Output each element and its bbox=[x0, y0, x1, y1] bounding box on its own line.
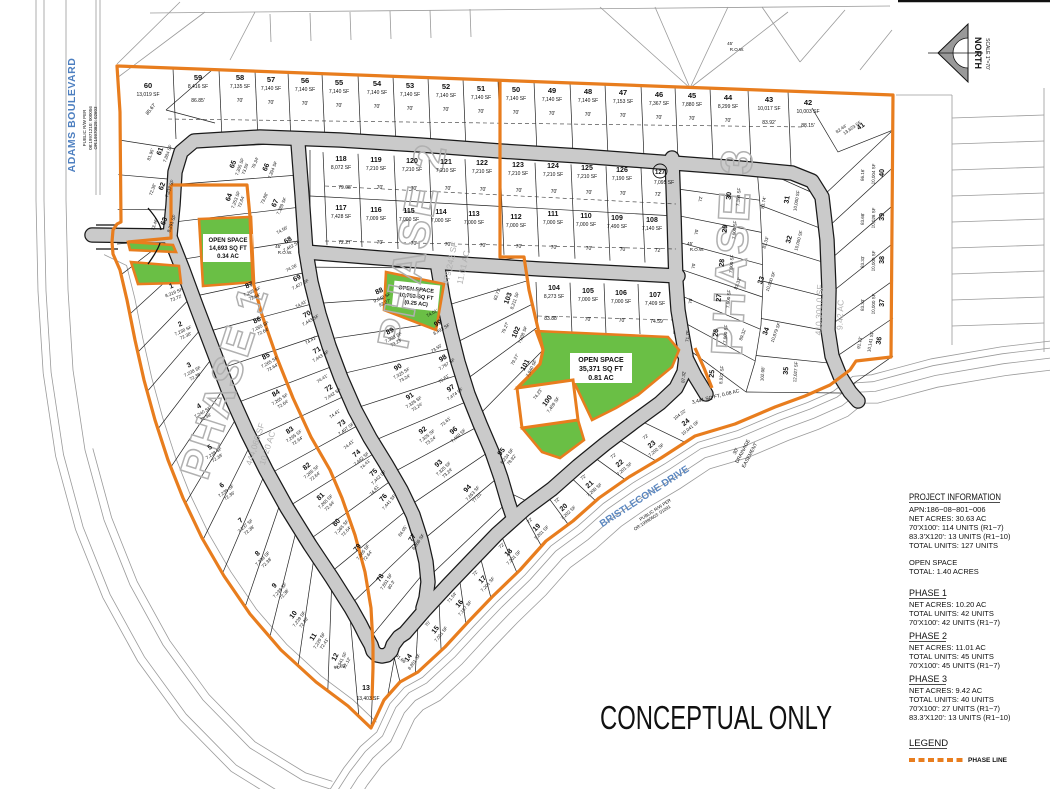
svg-text:9.42 AC: 9.42 AC bbox=[834, 300, 845, 331]
svg-text:45': 45' bbox=[687, 241, 693, 246]
svg-text:70'X100': 114 UNITS (R1−7): 70'X100': 114 UNITS (R1−7) bbox=[909, 523, 1004, 532]
svg-text:7,140 SF: 7,140 SF bbox=[578, 98, 598, 104]
svg-text:43: 43 bbox=[765, 95, 773, 104]
svg-text:70': 70' bbox=[585, 112, 592, 118]
svg-text:NET ACRES: 30.63 AC: NET ACRES: 30.63 AC bbox=[909, 514, 987, 523]
svg-text:83.3'X120': 13 UNITS (R1−10): 83.3'X120': 13 UNITS (R1−10) bbox=[909, 532, 1011, 541]
svg-text:8,416 SF: 8,416 SF bbox=[188, 84, 208, 90]
svg-text:10,028 SF: 10,028 SF bbox=[871, 207, 877, 228]
svg-text:105: 105 bbox=[582, 288, 594, 295]
svg-text:7,000 SF: 7,000 SF bbox=[578, 297, 598, 303]
svg-text:83.88': 83.88' bbox=[544, 316, 558, 322]
svg-text:7,140 SF: 7,140 SF bbox=[542, 97, 562, 103]
svg-text:CONCEPTUAL ONLY: CONCEPTUAL ONLY bbox=[600, 699, 832, 736]
svg-text:7,210 SF: 7,210 SF bbox=[508, 171, 528, 177]
svg-text:70': 70' bbox=[237, 98, 244, 104]
svg-text:70': 70' bbox=[689, 116, 696, 122]
svg-text:70'X100': 42 UNITS (R1−7): 70'X100': 42 UNITS (R1−7) bbox=[909, 618, 1001, 627]
svg-text:0.34 AC: 0.34 AC bbox=[217, 254, 239, 260]
svg-text:123: 123 bbox=[512, 162, 524, 169]
svg-text:27: 27 bbox=[716, 294, 724, 302]
svg-text:70': 70' bbox=[445, 186, 452, 192]
svg-text:58: 58 bbox=[236, 73, 244, 82]
svg-text:7,409 SF: 7,409 SF bbox=[645, 301, 665, 307]
svg-text:70': 70' bbox=[443, 107, 450, 113]
svg-text:70': 70' bbox=[516, 244, 523, 250]
svg-text:44: 44 bbox=[724, 93, 733, 102]
svg-text:47: 47 bbox=[619, 88, 627, 97]
svg-text:107: 107 bbox=[649, 292, 661, 299]
svg-text:39: 39 bbox=[879, 213, 886, 221]
svg-text:TOTAL UNITS: 42 UNITS: TOTAL UNITS: 42 UNITS bbox=[909, 609, 994, 618]
svg-text:56: 56 bbox=[301, 76, 309, 85]
svg-text:PHASE 3: PHASE 3 bbox=[909, 674, 947, 684]
svg-text:7,153 SF: 7,153 SF bbox=[613, 99, 633, 105]
svg-text:13: 13 bbox=[362, 685, 370, 692]
svg-text:7,000 SF: 7,000 SF bbox=[576, 222, 596, 228]
svg-text:7,140 SF: 7,140 SF bbox=[329, 89, 349, 95]
svg-text:NET ACRES: 10.20 AC: NET ACRES: 10.20 AC bbox=[909, 600, 987, 609]
svg-text:109: 109 bbox=[611, 215, 623, 222]
svg-text:10,000 SF: 10,000 SF bbox=[871, 250, 877, 271]
svg-text:70': 70' bbox=[268, 100, 275, 106]
svg-text:83.3'X120': 13 UNITS (R1−10): 83.3'X120': 13 UNITS (R1−10) bbox=[909, 713, 1011, 722]
svg-text:86.85': 86.85' bbox=[191, 98, 205, 104]
svg-text:29: 29 bbox=[722, 225, 730, 233]
svg-text:114: 114 bbox=[435, 209, 446, 216]
svg-text:37: 37 bbox=[879, 299, 886, 307]
svg-text:70': 70' bbox=[586, 246, 593, 252]
svg-text:120: 120 bbox=[406, 158, 418, 165]
svg-text:TOTAL: 1.40 ACRES: TOTAL: 1.40 ACRES bbox=[909, 567, 979, 576]
svg-text:7,210 SF: 7,210 SF bbox=[543, 172, 563, 178]
svg-text:PHASE LINE: PHASE LINE bbox=[968, 757, 1008, 764]
svg-text:7,009 SF: 7,009 SF bbox=[366, 216, 386, 222]
svg-text:70': 70' bbox=[445, 242, 452, 248]
svg-text:25: 25 bbox=[709, 370, 717, 378]
svg-text:7,428 SF: 7,428 SF bbox=[331, 214, 351, 220]
svg-text:70': 70' bbox=[411, 186, 418, 192]
svg-text:7,880 SF: 7,880 SF bbox=[682, 102, 702, 108]
svg-text:70': 70' bbox=[725, 118, 732, 124]
svg-text:LEGEND: LEGEND bbox=[909, 738, 948, 749]
svg-text:70': 70' bbox=[694, 229, 700, 235]
svg-text:54: 54 bbox=[373, 79, 382, 88]
svg-text:70': 70' bbox=[377, 185, 384, 191]
svg-text:112: 112 bbox=[510, 214, 521, 221]
svg-text:7,000 SF: 7,000 SF bbox=[399, 217, 419, 223]
svg-text:70': 70' bbox=[688, 298, 694, 304]
svg-text:NET ACRES: 11.01 AC: NET ACRES: 11.01 AC bbox=[909, 643, 986, 652]
svg-text:APN:186−08−801−006: APN:186−08−801−006 bbox=[909, 505, 986, 514]
svg-text:PUBLIC R/W PER: PUBLIC R/W PER bbox=[82, 109, 87, 147]
svg-text:83.92': 83.92' bbox=[762, 120, 776, 126]
svg-text:14,693 SQ FT: 14,693 SQ FT bbox=[209, 246, 247, 252]
svg-text:7,000 SF: 7,000 SF bbox=[506, 223, 526, 229]
svg-text:108: 108 bbox=[646, 217, 658, 224]
svg-text:119: 119 bbox=[370, 157, 381, 164]
svg-text:TOTAL UNITS: 127 UNITS: TOTAL UNITS: 127 UNITS bbox=[909, 541, 998, 550]
svg-text:70': 70' bbox=[516, 188, 523, 194]
svg-text:55: 55 bbox=[335, 78, 343, 87]
svg-text:70': 70' bbox=[336, 103, 343, 109]
svg-text:70'X100': 27 UNITS (R1−7): 70'X100': 27 UNITS (R1−7) bbox=[909, 704, 1001, 713]
svg-text:30: 30 bbox=[726, 192, 734, 200]
svg-text:70': 70' bbox=[480, 187, 487, 193]
svg-text:126: 126 bbox=[616, 167, 628, 174]
svg-text:59: 59 bbox=[194, 73, 202, 82]
svg-text:7,000 SF: 7,000 SF bbox=[464, 220, 484, 226]
svg-text:31: 31 bbox=[783, 195, 791, 204]
svg-text:7,210 SF: 7,210 SF bbox=[577, 174, 597, 180]
svg-text:13,403 SF: 13,403 SF bbox=[356, 696, 379, 702]
svg-text:10,000 SF: 10,000 SF bbox=[871, 293, 877, 314]
svg-text:R.O.W.: R.O.W. bbox=[690, 247, 705, 252]
svg-text:124: 124 bbox=[547, 163, 559, 170]
svg-text:70': 70' bbox=[620, 191, 627, 197]
svg-text:116: 116 bbox=[370, 207, 381, 214]
svg-text:PROJECT INFORMATION: PROJECT INFORMATION bbox=[909, 492, 1001, 503]
svg-text:7,210 SF: 7,210 SF bbox=[366, 166, 386, 172]
svg-text:26: 26 bbox=[713, 329, 721, 337]
svg-text:36: 36 bbox=[875, 336, 883, 345]
svg-text:72.27': 72.27' bbox=[338, 240, 352, 246]
svg-text:8,299 SF: 8,299 SF bbox=[718, 104, 738, 110]
svg-text:70': 70' bbox=[620, 113, 627, 119]
svg-text:70': 70' bbox=[374, 104, 381, 110]
svg-text:70': 70' bbox=[407, 106, 414, 112]
svg-text:PHASE 1: PHASE 1 bbox=[909, 588, 947, 598]
svg-text:NET ACRES: 9.42 AC: NET ACRES: 9.42 AC bbox=[909, 686, 983, 695]
svg-text:74.59': 74.59' bbox=[650, 319, 664, 325]
svg-text:127: 127 bbox=[655, 170, 666, 176]
svg-text:7,000 SF: 7,000 SF bbox=[431, 218, 451, 224]
svg-text:50: 50 bbox=[512, 85, 520, 94]
svg-text:7,367 SF: 7,367 SF bbox=[649, 101, 669, 107]
svg-text:35: 35 bbox=[783, 367, 791, 375]
svg-text:42: 42 bbox=[804, 98, 812, 107]
svg-text:7,210 SF: 7,210 SF bbox=[436, 168, 456, 174]
svg-text:0.81 AC: 0.81 AC bbox=[588, 375, 613, 382]
svg-text:60: 60 bbox=[144, 81, 152, 90]
svg-text:70': 70' bbox=[411, 241, 418, 247]
svg-text:70': 70' bbox=[620, 247, 627, 253]
svg-text:7,140 SF: 7,140 SF bbox=[400, 92, 420, 98]
svg-text:8,273 SF: 8,273 SF bbox=[544, 294, 564, 300]
svg-text:86.16': 86.16' bbox=[860, 169, 865, 181]
svg-text:7,000 SF: 7,000 SF bbox=[611, 299, 631, 305]
svg-text:122: 122 bbox=[476, 160, 488, 167]
svg-text:38: 38 bbox=[879, 256, 886, 264]
svg-text:35,371 SQ FT: 35,371 SQ FT bbox=[579, 366, 624, 373]
svg-text:125: 125 bbox=[581, 165, 593, 172]
svg-text:70': 70' bbox=[549, 111, 556, 117]
svg-text:115: 115 bbox=[403, 208, 414, 215]
svg-text:53: 53 bbox=[406, 81, 414, 90]
svg-text:R.O.W.: R.O.W. bbox=[730, 47, 745, 52]
svg-text:7,140 SF: 7,140 SF bbox=[436, 93, 456, 99]
svg-text:106: 106 bbox=[615, 290, 627, 297]
svg-text:70': 70' bbox=[551, 189, 558, 195]
svg-text:ADAMS BOULEVARD: ADAMS BOULEVARD bbox=[66, 58, 78, 173]
svg-text:45': 45' bbox=[275, 244, 281, 249]
svg-text:45': 45' bbox=[727, 41, 733, 46]
svg-text:7,140 SF: 7,140 SF bbox=[261, 86, 281, 92]
svg-text:7,095 SF: 7,095 SF bbox=[654, 180, 674, 186]
svg-text:7,140 SF: 7,140 SF bbox=[642, 226, 662, 232]
svg-text:OPEN SPACE: OPEN SPACE bbox=[578, 357, 624, 364]
svg-text:PHASE 2: PHASE 2 bbox=[909, 631, 947, 641]
svg-text:410,300.0 SF: 410,300.0 SF bbox=[813, 284, 825, 335]
svg-text:70': 70' bbox=[585, 317, 592, 323]
svg-text:13,019 SF: 13,019 SF bbox=[136, 92, 159, 98]
svg-text:70': 70' bbox=[302, 101, 309, 107]
svg-text:7,140 SF: 7,140 SF bbox=[506, 96, 526, 102]
svg-text:72': 72' bbox=[655, 192, 662, 198]
svg-text:79.08': 79.08' bbox=[338, 185, 352, 191]
svg-text:83.33': 83.33' bbox=[860, 299, 865, 311]
svg-text:8,072 SF: 8,072 SF bbox=[331, 165, 351, 171]
svg-text:7,140 SF: 7,140 SF bbox=[367, 90, 387, 96]
svg-text:TOTAL UNITS: 45 UNITS: TOTAL UNITS: 45 UNITS bbox=[909, 652, 994, 661]
svg-text:7,135 SF: 7,135 SF bbox=[230, 84, 250, 90]
svg-text:7,490 SF: 7,490 SF bbox=[607, 224, 627, 230]
svg-text:NORTH: NORTH bbox=[973, 37, 983, 69]
svg-text:10,003 SF: 10,003 SF bbox=[796, 109, 819, 115]
svg-text:46: 46 bbox=[655, 90, 663, 99]
svg-text:87.32': 87.32' bbox=[680, 370, 686, 383]
svg-text:70': 70' bbox=[513, 110, 520, 116]
svg-text:7,190 SF: 7,190 SF bbox=[612, 176, 632, 182]
svg-text:57: 57 bbox=[267, 75, 275, 84]
svg-text:70': 70' bbox=[619, 318, 626, 324]
svg-text:7,000 SF: 7,000 SF bbox=[543, 220, 563, 226]
svg-text:110: 110 bbox=[580, 213, 591, 220]
svg-text:45: 45 bbox=[688, 91, 696, 100]
svg-text:70': 70' bbox=[480, 243, 487, 249]
svg-text:OPEN SPACE: OPEN SPACE bbox=[909, 558, 957, 567]
svg-text:70': 70' bbox=[478, 109, 485, 115]
svg-text:7,210 SF: 7,210 SF bbox=[472, 169, 492, 175]
svg-text:83.68': 83.68' bbox=[860, 213, 865, 225]
svg-text:7,140 SF: 7,140 SF bbox=[471, 95, 491, 101]
svg-text:70': 70' bbox=[586, 190, 593, 196]
svg-text:111: 111 bbox=[548, 211, 559, 218]
svg-text:104: 104 bbox=[548, 285, 560, 292]
svg-text:71.75': 71.75' bbox=[684, 329, 690, 342]
svg-text:70': 70' bbox=[691, 263, 697, 269]
svg-text:7,140 SF: 7,140 SF bbox=[295, 87, 315, 93]
svg-text:10,004 SF: 10,004 SF bbox=[871, 163, 877, 184]
svg-text:R.O.W.: R.O.W. bbox=[278, 250, 293, 255]
svg-text:70'X100': 45 UNITS (R1−7): 70'X100': 45 UNITS (R1−7) bbox=[909, 661, 1001, 670]
svg-text:72': 72' bbox=[698, 196, 704, 202]
svg-text:OPEN SPACE: OPEN SPACE bbox=[209, 238, 248, 244]
svg-text:40: 40 bbox=[879, 169, 886, 177]
svg-text:7,210 SF: 7,210 SF bbox=[402, 167, 422, 173]
svg-text:SCALE 1"=70': SCALE 1"=70' bbox=[984, 38, 990, 70]
svg-text:OR:19970829: 02603: OR:19970829: 02603 bbox=[93, 106, 98, 150]
svg-text:10,017 SF: 10,017 SF bbox=[757, 106, 780, 112]
svg-text:48: 48 bbox=[584, 87, 592, 96]
svg-text:TOTAL UNITS: 40 UNITS: TOTAL UNITS: 40 UNITS bbox=[909, 695, 994, 704]
svg-text:28: 28 bbox=[719, 259, 727, 267]
svg-text:70': 70' bbox=[656, 115, 663, 121]
svg-text:51: 51 bbox=[477, 84, 485, 93]
svg-text:117: 117 bbox=[335, 205, 346, 212]
svg-text:49: 49 bbox=[548, 86, 556, 95]
svg-text:52: 52 bbox=[442, 82, 450, 91]
svg-text:118: 118 bbox=[335, 156, 346, 163]
svg-text:113: 113 bbox=[468, 211, 479, 218]
svg-text:72': 72' bbox=[655, 248, 662, 254]
svg-text:70': 70' bbox=[551, 245, 558, 251]
svg-text:70': 70' bbox=[377, 240, 384, 246]
svg-text:121: 121 bbox=[440, 159, 452, 166]
svg-text:88.15': 88.15' bbox=[801, 123, 815, 129]
svg-text:83.33': 83.33' bbox=[860, 256, 865, 268]
